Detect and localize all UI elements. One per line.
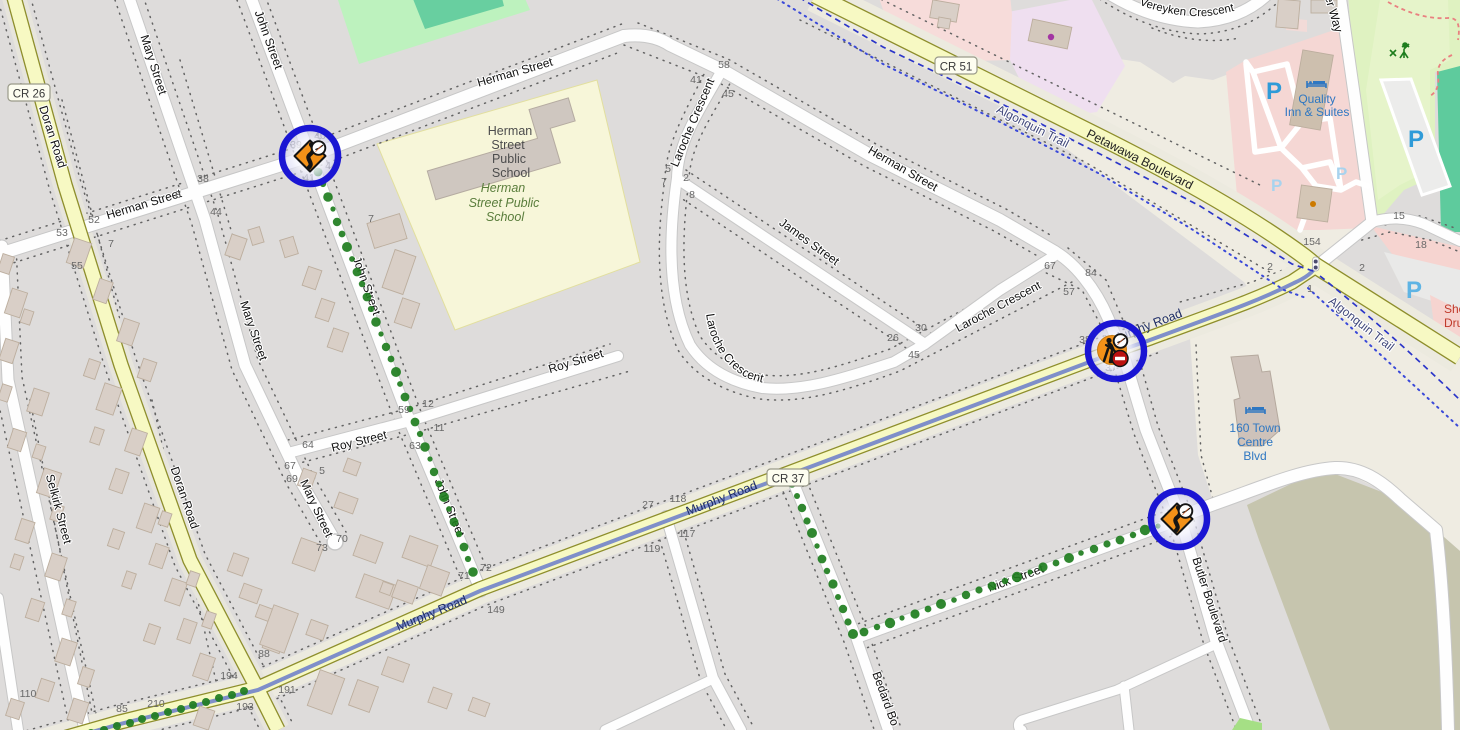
- svg-text:27: 27: [642, 499, 654, 511]
- svg-text:Quality: Quality: [1298, 92, 1335, 106]
- svg-text:Street Public: Street Public: [469, 196, 541, 210]
- svg-text:70: 70: [336, 533, 348, 545]
- svg-text:53: 53: [56, 227, 68, 239]
- svg-text:2: 2: [1359, 262, 1365, 274]
- svg-text:11: 11: [434, 422, 445, 434]
- svg-text:5: 5: [319, 465, 325, 477]
- svg-text:CR 26: CR 26: [13, 89, 46, 101]
- svg-text:26: 26: [887, 332, 899, 344]
- svg-text:5: 5: [665, 163, 671, 175]
- svg-text:45: 45: [908, 349, 920, 361]
- svg-text:Blvd: Blvd: [1243, 449, 1266, 463]
- svg-text:30: 30: [915, 322, 927, 334]
- svg-text:P: P: [1336, 164, 1347, 183]
- svg-text:210: 210: [147, 698, 165, 710]
- svg-text:45: 45: [722, 88, 734, 100]
- svg-text:P: P: [1408, 126, 1424, 153]
- svg-text:8: 8: [175, 189, 181, 201]
- svg-text:117: 117: [679, 528, 696, 540]
- svg-text:69: 69: [286, 473, 298, 485]
- svg-text:Herman: Herman: [488, 124, 533, 138]
- svg-text:110: 110: [20, 688, 37, 700]
- svg-text:15: 15: [1393, 210, 1405, 222]
- svg-text:1: 1: [1307, 283, 1313, 295]
- svg-text:P: P: [1266, 78, 1282, 105]
- svg-text:18: 18: [1415, 239, 1427, 251]
- svg-text:School: School: [492, 166, 530, 180]
- svg-text:58: 58: [718, 59, 730, 71]
- svg-text:2: 2: [1267, 261, 1273, 273]
- svg-text:Street: Street: [491, 138, 525, 152]
- svg-text:73: 73: [316, 542, 328, 554]
- svg-text:72: 72: [480, 562, 492, 574]
- svg-text:8: 8: [689, 189, 695, 201]
- svg-text:193: 193: [236, 701, 254, 713]
- svg-text:Shop: Shop: [1444, 302, 1460, 316]
- svg-text:2: 2: [683, 172, 689, 184]
- svg-text:52: 52: [88, 214, 100, 226]
- svg-text:38: 38: [197, 173, 209, 185]
- svg-text:P: P: [1406, 277, 1422, 304]
- svg-text:P: P: [1271, 176, 1282, 195]
- svg-text:191: 191: [278, 684, 296, 696]
- svg-text:41: 41: [690, 74, 702, 86]
- svg-text:149: 149: [487, 604, 505, 616]
- svg-text:Drug: Drug: [1444, 316, 1460, 330]
- svg-text:44: 44: [210, 206, 222, 218]
- svg-text:CR 37: CR 37: [772, 474, 805, 486]
- svg-text:7: 7: [368, 213, 374, 225]
- svg-text:67: 67: [284, 460, 296, 472]
- svg-text:85: 85: [116, 703, 128, 715]
- svg-text:Public: Public: [492, 152, 526, 166]
- svg-text:67: 67: [1044, 260, 1056, 272]
- svg-text:194: 194: [220, 670, 238, 682]
- svg-text:7: 7: [108, 238, 114, 250]
- svg-text:119: 119: [644, 543, 661, 555]
- svg-text:154: 154: [1303, 236, 1321, 248]
- svg-text:59: 59: [398, 404, 410, 416]
- svg-text:CR 51: CR 51: [940, 62, 973, 74]
- svg-text:57: 57: [1063, 286, 1075, 298]
- svg-text:84: 84: [1085, 267, 1097, 279]
- svg-text:160 Town: 160 Town: [1229, 421, 1280, 435]
- svg-text:Herman: Herman: [481, 181, 526, 195]
- svg-text:Inn & Suites: Inn & Suites: [1285, 105, 1350, 119]
- svg-text:School: School: [486, 210, 525, 224]
- svg-text:64: 64: [302, 439, 314, 451]
- svg-text:88: 88: [258, 648, 270, 660]
- svg-text:118: 118: [670, 493, 687, 505]
- svg-text:63: 63: [409, 440, 421, 452]
- svg-text:Centre: Centre: [1237, 435, 1273, 449]
- svg-text:71: 71: [458, 570, 470, 582]
- svg-text:12: 12: [422, 398, 434, 410]
- svg-text:55: 55: [71, 260, 83, 272]
- svg-text:7: 7: [661, 176, 667, 188]
